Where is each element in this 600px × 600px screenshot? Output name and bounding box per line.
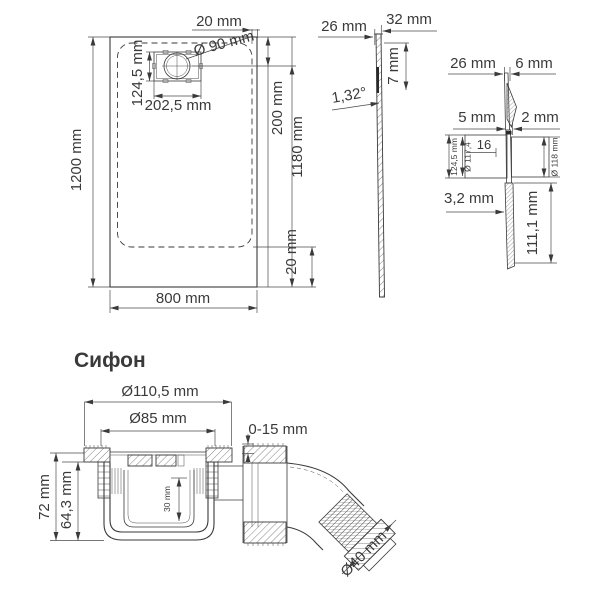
detail-wedge (507, 83, 517, 127)
detail-lower-band (505, 183, 515, 269)
siphon-outer-diameter-label: Ø110,5 mm (121, 383, 198, 400)
plan-bottom-label: 800 mm (156, 290, 210, 307)
detail-seal (506, 131, 512, 135)
siphon-right-flange-nut (206, 448, 232, 462)
detail-box-height-label: 124,5 mm (449, 138, 459, 176)
plan-top-offset-label: 20 mm (196, 13, 242, 30)
section-angle-label: 1,32° (330, 84, 368, 107)
detail-lower-height-label: 111,1 mm (524, 191, 541, 255)
plan-drain-diameter-label: Ø 90 mm (192, 27, 256, 59)
detail-top-left-label: 26 mm (450, 55, 496, 72)
plan-right-inner-label: 1180 mm (289, 116, 306, 177)
siphon-inner-diameter-label: Ø85 mm (129, 410, 187, 427)
siphon-dimensions (50, 402, 396, 574)
detail-inner-diameter-label: Ø 117,4 (463, 142, 473, 172)
section-drain-zone (376, 67, 379, 93)
tray-plan-view: 20 mm Ø 90 mm 124,5 mm 202,5 mm 200 mm 1… (68, 13, 316, 313)
detail-mid-right-label: 2 mm (521, 109, 559, 126)
siphon-left-flange-nut (84, 448, 110, 462)
siphon-adjust-range-label: 0-15 mm (248, 421, 307, 438)
plan-drain-height-label: 124,5 mm (129, 40, 146, 107)
section-depth-label: 7 mm (385, 47, 402, 85)
siphon-union-nut-bottom (244, 522, 286, 543)
siphon-view: Сифон (36, 349, 401, 580)
detail-inner-label: 16 (477, 137, 491, 152)
siphon-total-height-label: 72 mm (36, 474, 53, 520)
section-left-top-label: 26 mm (321, 18, 367, 35)
plan-left-label: 1200 mm (68, 129, 85, 192)
siphon-body (84, 445, 232, 540)
edge-detail-view: 26 mm 6 mm 5 mm 2 mm 16 124,5 mm Ø 117,4… (444, 55, 560, 269)
detail-outer-diameter-label: Ø 118 mm (550, 137, 560, 176)
siphon-body-height-label: 64,3 mm (58, 471, 75, 529)
siphon-union-nut-top (244, 446, 286, 463)
plan-right-lower-label: 20 mm (283, 229, 300, 275)
siphon-cup-insert (124, 470, 194, 527)
detail-right-box (512, 137, 550, 177)
section-right-top-label: 32 mm (386, 11, 432, 28)
plan-dimensions (88, 29, 316, 313)
detail-mid-left-label: 5 mm (458, 109, 496, 126)
siphon-cup-shell (104, 462, 214, 540)
detail-top-right-label: 6 mm (515, 55, 553, 72)
tray-section-view: 26 mm 32 mm 7 mm 1,32° (318, 11, 437, 297)
plan-drain-width-label: 202,5 mm (145, 97, 212, 114)
siphon-water-seal-label: 30 mm (162, 486, 172, 512)
siphon-lid-section-left (128, 455, 152, 466)
technical-drawing-page: 20 mm Ø 90 mm 124,5 mm 202,5 mm 200 mm 1… (0, 0, 600, 600)
elbow-inner-edge (287, 527, 323, 550)
detail-thickness-label: 3,2 mm (444, 190, 494, 207)
siphon-title: Сифон (74, 349, 146, 372)
plan-right-upper-label: 200 mm (269, 81, 286, 135)
siphon-lid-section-right (156, 455, 176, 466)
drawing-canvas: 20 mm Ø 90 mm 124,5 mm 202,5 mm 200 mm 1… (0, 0, 600, 600)
